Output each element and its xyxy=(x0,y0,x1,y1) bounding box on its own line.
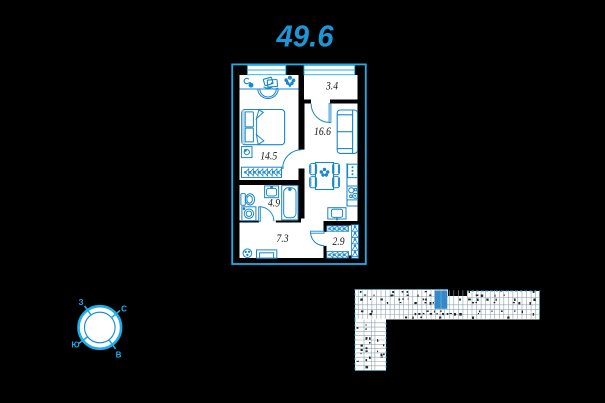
svg-text:16.6: 16.6 xyxy=(314,125,331,138)
svg-text:С: С xyxy=(121,305,127,314)
svg-text:Ю: Ю xyxy=(71,341,79,350)
svg-text:3.4: 3.4 xyxy=(325,80,338,93)
svg-text:2.9: 2.9 xyxy=(333,235,345,248)
svg-text:49.6: 49.6 xyxy=(276,19,335,54)
svg-text:7.3: 7.3 xyxy=(277,232,289,245)
svg-text:14.5: 14.5 xyxy=(260,150,277,163)
svg-text:З: З xyxy=(78,298,83,307)
svg-text:4.9: 4.9 xyxy=(268,197,280,210)
svg-text:В: В xyxy=(116,351,122,360)
